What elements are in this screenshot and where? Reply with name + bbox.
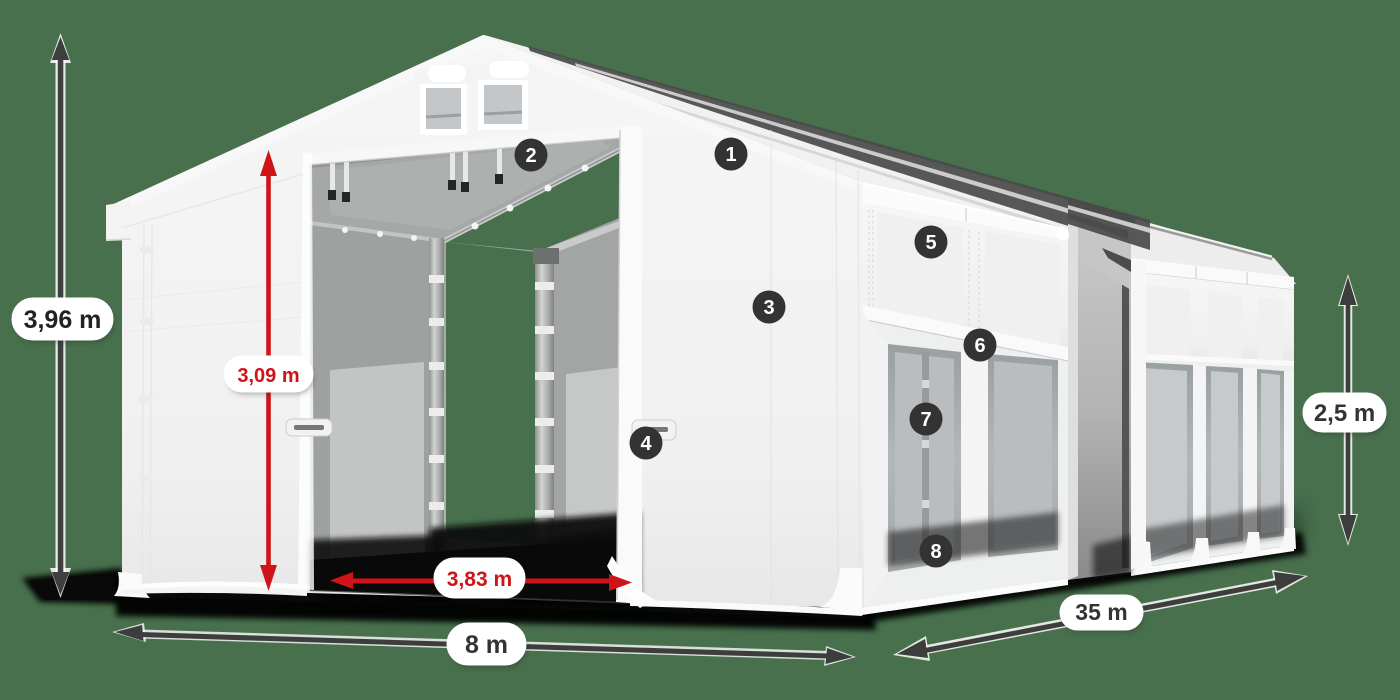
svg-text:3,09 m: 3,09 m [237, 365, 299, 387]
svg-text:8 m: 8 m [465, 631, 508, 659]
svg-text:2,5 m: 2,5 m [1314, 400, 1375, 427]
svg-text:7: 7 [920, 409, 931, 431]
svg-text:35 m: 35 m [1075, 599, 1127, 625]
svg-text:8: 8 [930, 541, 941, 563]
svg-text:3,83 m: 3,83 m [447, 568, 512, 591]
svg-text:3: 3 [763, 297, 774, 319]
svg-text:6: 6 [974, 335, 985, 357]
svg-text:5: 5 [925, 232, 936, 254]
svg-text:3,96 m: 3,96 m [24, 306, 102, 334]
svg-text:4: 4 [640, 433, 652, 455]
svg-text:1: 1 [725, 144, 736, 166]
svg-text:2: 2 [525, 145, 536, 167]
